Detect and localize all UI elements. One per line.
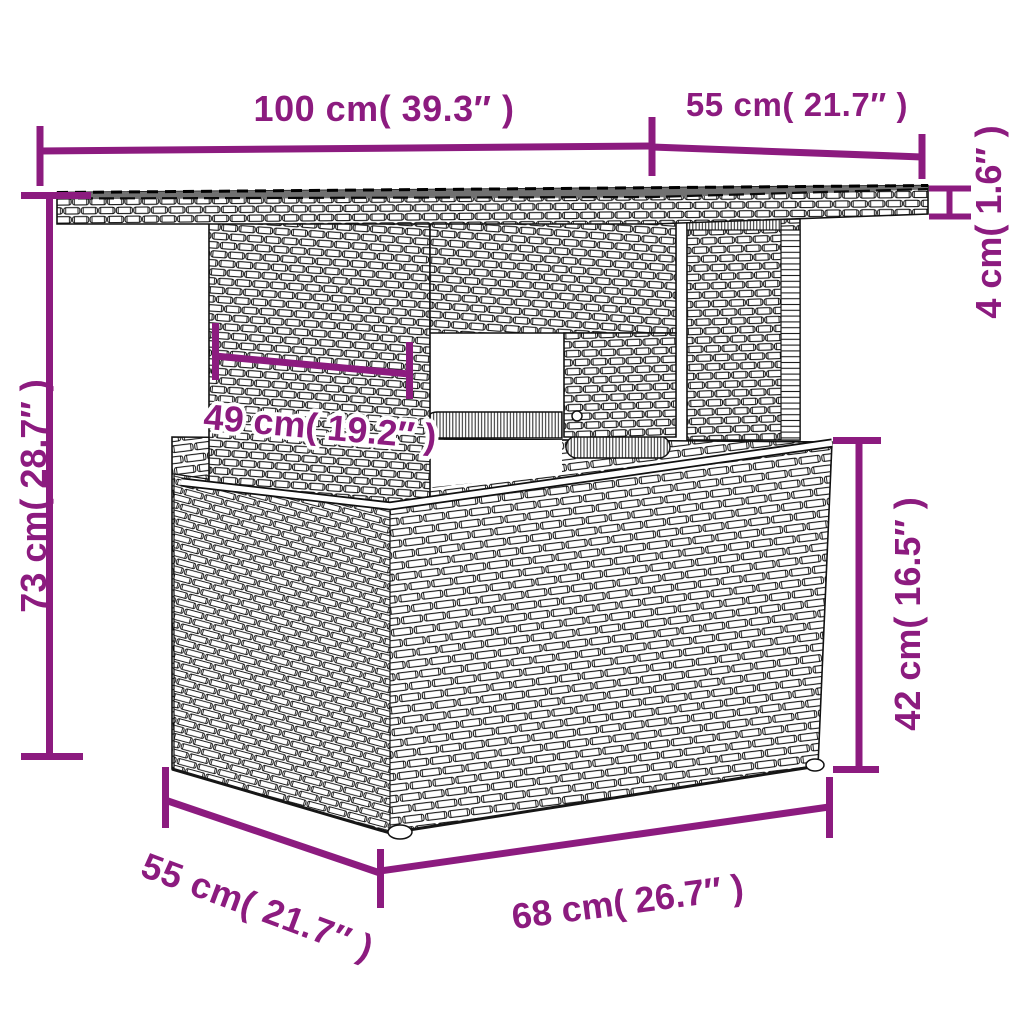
svg-text:55 cm( 21.7″ ): 55 cm( 21.7″ ) xyxy=(686,86,908,123)
svg-text:100 cm( 39.3″ ): 100 cm( 39.3″ ) xyxy=(254,88,515,129)
svg-text:4 cm( 1.6″ ): 4 cm( 1.6″ ) xyxy=(968,125,1009,318)
svg-text:73 cm( 28.7″ ): 73 cm( 28.7″ ) xyxy=(13,379,54,612)
svg-text:42 cm( 16.5″ ): 42 cm( 16.5″ ) xyxy=(887,497,928,730)
